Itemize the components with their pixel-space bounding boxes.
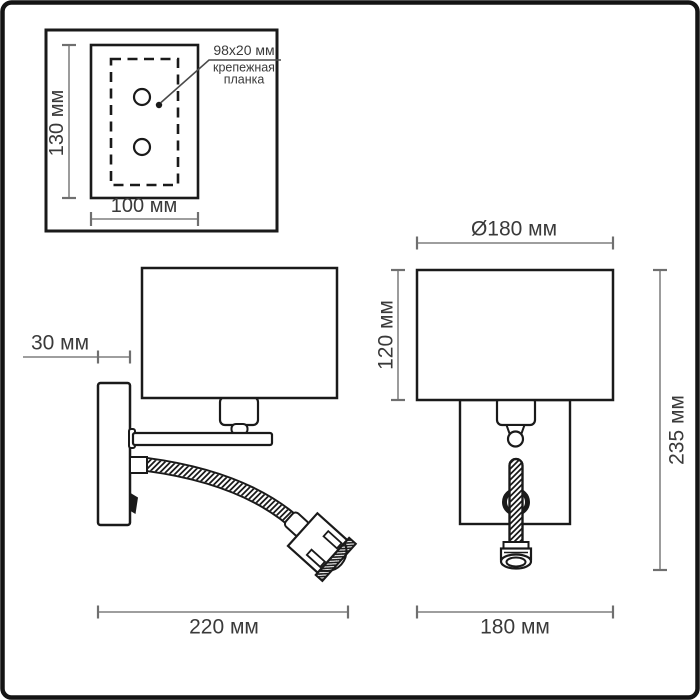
- front-flex-rod-hatch: [510, 459, 523, 547]
- callout-name-line2: планка: [224, 73, 265, 87]
- dim-shade-height-label: 120 мм: [375, 300, 398, 370]
- dim-plate-height-label: 130 мм: [46, 90, 68, 156]
- dim-wall-offset-label: 30 мм: [31, 332, 89, 355]
- mounting-plate: [91, 45, 198, 198]
- front-bulb: [508, 432, 523, 447]
- side-lampshade: [142, 268, 337, 398]
- screw-hole-top: [134, 89, 150, 105]
- side-wall-plate: [98, 383, 130, 525]
- drawing-canvas: 130 мм 100 мм 98x20 мм крепежная планка: [0, 0, 700, 700]
- side-flex-connector: [130, 457, 147, 473]
- front-head-lens: [507, 558, 526, 567]
- front-reading-head: [501, 542, 531, 569]
- dim-plate-width-label: 100 мм: [111, 195, 177, 217]
- dim-total-height-label: 235 мм: [666, 395, 689, 465]
- lamp-dimension-drawing: 130 мм 100 мм 98x20 мм крепежная планка: [0, 0, 700, 700]
- screw-hole-bottom: [134, 139, 150, 155]
- dim-side-depth-label: 220 мм: [189, 616, 259, 639]
- dim-shade-diameter-label: Ø180 мм: [471, 218, 557, 241]
- front-lampshade: [417, 270, 613, 400]
- dim-front-width-label: 180 мм: [480, 616, 550, 639]
- side-arm: [133, 433, 272, 445]
- side-socket: [220, 397, 258, 425]
- detail-inset: 130 мм 100 мм 98x20 мм крепежная планка: [46, 30, 281, 231]
- callout-size-label: 98x20 мм: [213, 42, 274, 58]
